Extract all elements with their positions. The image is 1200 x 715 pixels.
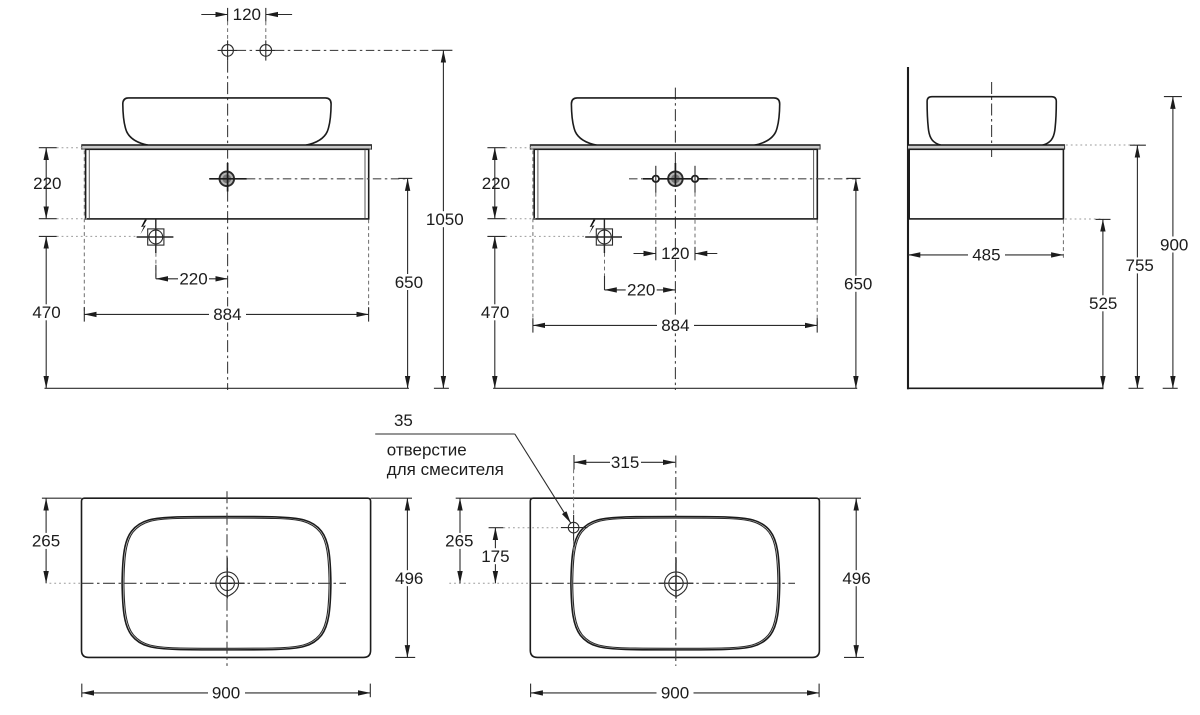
svg-text:485: 485 <box>972 246 1000 265</box>
svg-text:496: 496 <box>395 569 423 588</box>
svg-text:120: 120 <box>233 5 261 24</box>
svg-text:525: 525 <box>1089 294 1117 313</box>
svg-text:265: 265 <box>32 532 60 551</box>
svg-text:220: 220 <box>33 174 61 193</box>
svg-text:650: 650 <box>844 275 872 294</box>
svg-text:900: 900 <box>212 684 240 703</box>
svg-text:315: 315 <box>611 453 639 472</box>
svg-text:1050: 1050 <box>426 210 464 229</box>
svg-text:470: 470 <box>481 303 509 322</box>
svg-text:265: 265 <box>445 532 473 551</box>
svg-text:884: 884 <box>661 316 689 335</box>
svg-text:900: 900 <box>661 684 689 703</box>
svg-text:отверстие: отверстие <box>387 441 467 460</box>
svg-text:755: 755 <box>1126 256 1154 275</box>
svg-text:35: 35 <box>394 411 413 430</box>
svg-text:для смесителя: для смесителя <box>387 460 504 479</box>
svg-text:900: 900 <box>1160 235 1188 254</box>
svg-text:884: 884 <box>213 305 241 324</box>
svg-text:650: 650 <box>395 273 423 292</box>
svg-text:470: 470 <box>32 303 60 322</box>
svg-text:175: 175 <box>481 547 509 566</box>
svg-text:496: 496 <box>842 569 870 588</box>
svg-text:220: 220 <box>179 270 207 289</box>
svg-text:220: 220 <box>627 281 655 300</box>
svg-text:120: 120 <box>661 244 689 263</box>
svg-text:220: 220 <box>482 174 510 193</box>
